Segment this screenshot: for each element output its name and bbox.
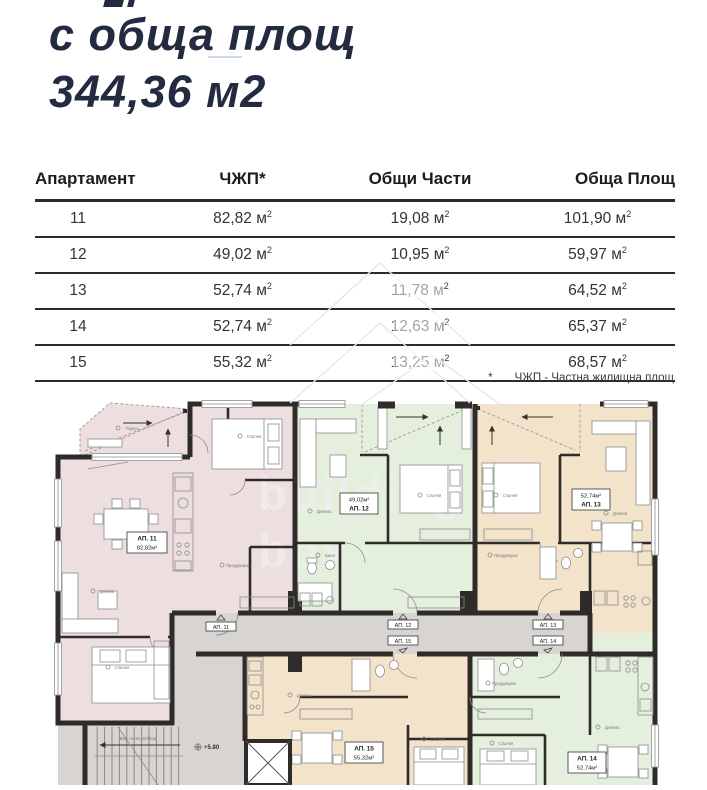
kitchen-band-14 bbox=[590, 633, 655, 654]
svg-text:Спалня: Спалня bbox=[503, 493, 518, 498]
table-row: 14 52,74 м2 12,63 м2 65,37 м2 bbox=[35, 310, 675, 346]
cell-total: 59,97 м2 bbox=[520, 245, 675, 264]
apartment-label-11: АП. 11 82,82м² bbox=[127, 532, 167, 553]
col-header-common: Общи Части bbox=[320, 169, 520, 189]
bed bbox=[400, 465, 462, 513]
svg-text:52,74м²: 52,74м² bbox=[577, 766, 597, 772]
apartment-label-14: АП. 14 52,74м² bbox=[568, 752, 606, 773]
cell-chzhp: 52,74 м2 bbox=[165, 281, 320, 300]
cell-common: 11,78 м2 bbox=[320, 281, 520, 300]
svg-text:55,32м²: 55,32м² bbox=[354, 756, 374, 762]
table-body: 11 82,82 м2 19,08 м2 101,90 м2 12 49,02 … bbox=[35, 199, 675, 382]
svg-text:Дневна: Дневна bbox=[297, 693, 312, 698]
svg-text:АП. 15: АП. 15 bbox=[395, 639, 412, 645]
apartment-label-12: 49,02м² АП. 12 bbox=[340, 493, 378, 514]
brochure-page: { "title": { "line1": "с обща площ", "li… bbox=[0, 0, 707, 785]
svg-text:box: box bbox=[258, 524, 351, 577]
col-header-total: Обща Площ bbox=[520, 169, 675, 189]
floor-plan: building box bbox=[0, 395, 707, 785]
floor-plan-svg: building box bbox=[0, 395, 707, 785]
cell-chzhp: 55,32 м2 bbox=[165, 353, 320, 372]
svg-text:Преддверие: Преддверие bbox=[226, 563, 251, 568]
svg-text:Преддверие: Преддверие bbox=[492, 681, 517, 686]
cell-chzhp: 82,82 м2 bbox=[165, 209, 320, 228]
apartment-label-15: АП. 15 55,32м² bbox=[345, 742, 383, 763]
svg-text:Баня: Баня bbox=[325, 553, 335, 558]
svg-text:Дневна: Дневна bbox=[100, 589, 115, 594]
svg-text:Дневна: Дневна bbox=[613, 511, 628, 516]
cell-apartment: 11 bbox=[35, 210, 165, 228]
title-line-1: с обща площ bbox=[49, 6, 357, 63]
svg-text:АП. 13: АП. 13 bbox=[540, 623, 557, 629]
svg-text:АП. 14: АП. 14 bbox=[577, 756, 597, 763]
title-line-2: 344,36 м2 bbox=[49, 63, 357, 120]
svg-text:АП. 14: АП. 14 bbox=[540, 639, 557, 645]
cell-common: 12,63 м2 bbox=[320, 317, 520, 336]
cell-common: 10,95 м2 bbox=[320, 245, 520, 264]
table-header: Апартамент ЧЖП* Общи Части Обща Площ bbox=[35, 169, 675, 199]
svg-text:Спалня: Спалня bbox=[499, 741, 514, 746]
svg-text:Дневна: Дневна bbox=[317, 509, 332, 514]
footnote: * ЧЖП - Частна жилищна площ bbox=[488, 372, 674, 384]
svg-text:Спалня: Спалня bbox=[431, 737, 446, 742]
cell-total: 101,90 м2 bbox=[520, 209, 675, 228]
stairs-note: Вис. на 16,15/28см bbox=[120, 736, 157, 741]
table-row: 13 52,74 м2 11,78 м2 64,52 м2 bbox=[35, 274, 675, 310]
footnote-text: ЧЖП - Частна жилищна площ bbox=[515, 372, 674, 384]
planter bbox=[88, 439, 122, 447]
col-header-apartment: Апартамент bbox=[35, 169, 165, 189]
cell-total: 65,37 м2 bbox=[520, 317, 675, 336]
cell-apartment: 12 bbox=[35, 246, 165, 264]
table-row: 11 82,82 м2 19,08 м2 101,90 м2 bbox=[35, 202, 675, 238]
cell-total: 68,57 м2 bbox=[520, 353, 675, 372]
bed bbox=[482, 463, 540, 513]
bed bbox=[212, 419, 282, 469]
svg-text:Спалня: Спалня bbox=[115, 665, 130, 670]
level-text: +5.80 bbox=[204, 745, 220, 751]
svg-text:49,02м²: 49,02м² bbox=[349, 498, 369, 504]
svg-text:АП. 11: АП. 11 bbox=[137, 536, 157, 543]
bed bbox=[480, 749, 536, 785]
svg-text:Спалня: Спалня bbox=[247, 434, 262, 439]
cell-common: 13,25 м2 bbox=[320, 353, 520, 372]
page-title: с обща площ 344,36 м2 bbox=[49, 6, 357, 120]
cell-apartment: 15 bbox=[35, 354, 165, 372]
cell-common: 19,08 м2 bbox=[320, 209, 520, 228]
cell-apartment: 13 bbox=[35, 282, 165, 300]
staircase: Вис. на 16,15/28см bbox=[95, 727, 183, 785]
bed bbox=[414, 747, 464, 785]
col-header-chzhp: ЧЖП* bbox=[165, 169, 320, 189]
table-row: 12 49,02 м2 10,95 м2 59,97 м2 bbox=[35, 238, 675, 274]
svg-text:АП. 15: АП. 15 bbox=[354, 746, 374, 753]
apartments-table: Апартамент ЧЖП* Общи Части Обща Площ 11 … bbox=[35, 169, 675, 382]
svg-text:Преддверие: Преддверие bbox=[494, 553, 519, 558]
cell-chzhp: 52,74 м2 bbox=[165, 317, 320, 336]
cell-chzhp: 49,02 м2 bbox=[165, 245, 320, 264]
cell-total: 64,52 м2 bbox=[520, 281, 675, 300]
svg-text:82,82м²: 82,82м² bbox=[137, 546, 157, 552]
svg-text:АП. 13: АП. 13 bbox=[581, 502, 601, 509]
footnote-star: * bbox=[488, 372, 492, 384]
elevator bbox=[246, 741, 290, 785]
svg-text:52,74м²: 52,74м² bbox=[581, 494, 601, 500]
cell-apartment: 14 bbox=[35, 318, 165, 336]
svg-text:Тераса: Тераса bbox=[125, 426, 139, 431]
svg-text:АП. 12: АП. 12 bbox=[349, 506, 369, 513]
svg-text:АП. 11: АП. 11 bbox=[213, 625, 229, 631]
apartment-label-13: 52,74м² АП. 13 bbox=[572, 489, 610, 510]
svg-text:Спалня: Спалня bbox=[427, 493, 442, 498]
svg-text:АП. 12: АП. 12 bbox=[395, 623, 412, 629]
kitchen-band-13 bbox=[590, 613, 655, 633]
svg-text:Дневна: Дневна bbox=[605, 725, 620, 730]
bed bbox=[92, 647, 170, 703]
